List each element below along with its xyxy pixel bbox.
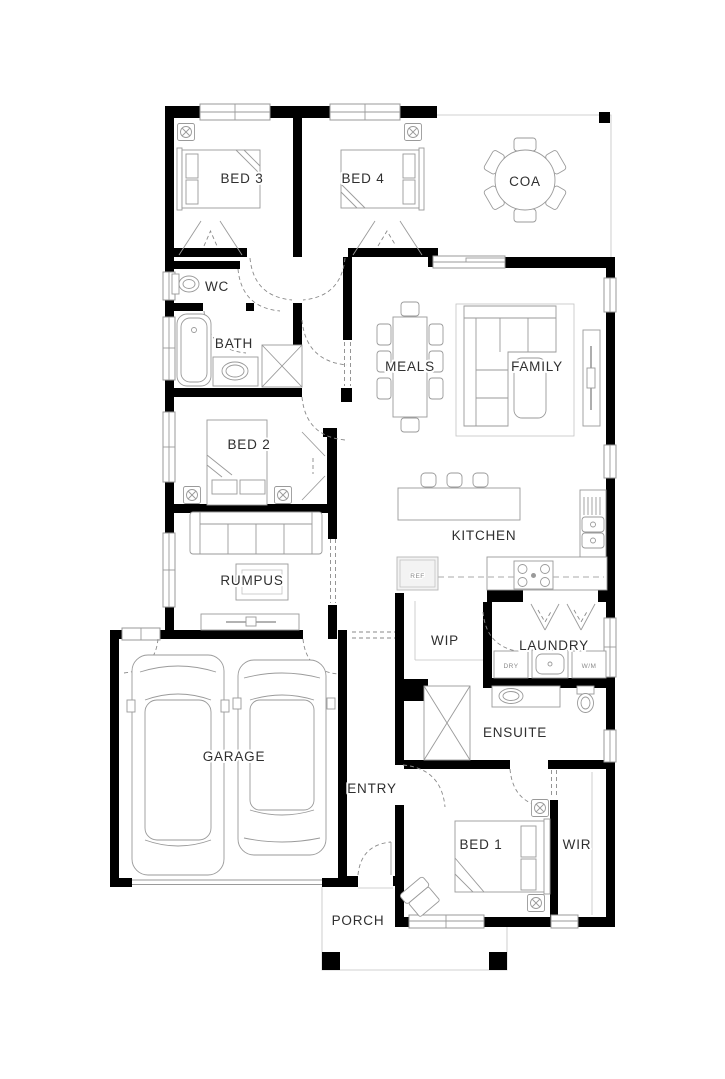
- toilet: [577, 686, 594, 713]
- downlight-icon: [184, 487, 201, 504]
- laundry-sink: [532, 650, 568, 678]
- dry-label: DRY: [503, 663, 518, 670]
- room-label-family: FAMILY: [511, 359, 563, 374]
- room-label-rumpus: RUMPUS: [220, 573, 283, 588]
- window: [330, 104, 400, 120]
- ref-label: REF: [410, 573, 425, 580]
- room-label-bed1: BED 1: [459, 837, 502, 852]
- sliding-door: [433, 256, 505, 268]
- downlight-icon: [405, 124, 422, 141]
- coa-post: [599, 112, 610, 123]
- refrigerator: REF: [397, 557, 438, 590]
- window: [604, 278, 616, 312]
- cooktop: [514, 561, 553, 589]
- room-label-wip: WIP: [431, 633, 459, 648]
- room-label-wir: WIR: [563, 837, 592, 852]
- downlight-icon: [532, 800, 549, 817]
- bed2-furniture: [207, 420, 267, 505]
- car: [127, 655, 229, 875]
- tv-unit: [201, 614, 299, 630]
- laundry-fixtures: DRY W/M: [494, 650, 606, 678]
- downlight-icon: [275, 487, 292, 504]
- room-label-bed4: BED 4: [341, 171, 384, 186]
- porch-post: [489, 952, 507, 970]
- window: [604, 730, 616, 762]
- room-label-coa: COA: [509, 174, 541, 189]
- washing-machine: W/M: [572, 651, 606, 678]
- room-label-kitchen: KITCHEN: [452, 528, 517, 543]
- floor-plan-canvas: REF DRY W/M: [0, 0, 725, 1079]
- window: [163, 412, 175, 482]
- room-label-bed2: BED 2: [227, 437, 270, 452]
- room-label-entry: ENTRY: [347, 781, 397, 796]
- tv-unit: [583, 330, 600, 426]
- wm-label: W/M: [582, 663, 597, 670]
- porch-post: [322, 952, 340, 970]
- window: [551, 915, 578, 928]
- window: [163, 533, 175, 607]
- window: [163, 317, 175, 380]
- room-label-laundry: LAUNDRY: [519, 638, 589, 653]
- window: [409, 915, 484, 928]
- window: [122, 628, 160, 640]
- window: [604, 445, 616, 478]
- island-bench: [398, 488, 520, 520]
- window: [200, 104, 270, 120]
- dryer: DRY: [494, 651, 528, 678]
- room-label-bath: BATH: [215, 336, 253, 351]
- room-label-garage: GARAGE: [203, 749, 266, 764]
- shower: [262, 345, 302, 387]
- room-label-bed3: BED 3: [220, 171, 263, 186]
- room-label-ensuite: ENSUITE: [483, 725, 547, 740]
- downlight-icon: [528, 895, 545, 912]
- room-label-porch: PORCH: [332, 913, 385, 928]
- room-label-wc: WC: [205, 279, 229, 294]
- shower: [424, 686, 470, 760]
- room-label-meals: MEALS: [385, 359, 435, 374]
- downlight-icon: [178, 124, 195, 141]
